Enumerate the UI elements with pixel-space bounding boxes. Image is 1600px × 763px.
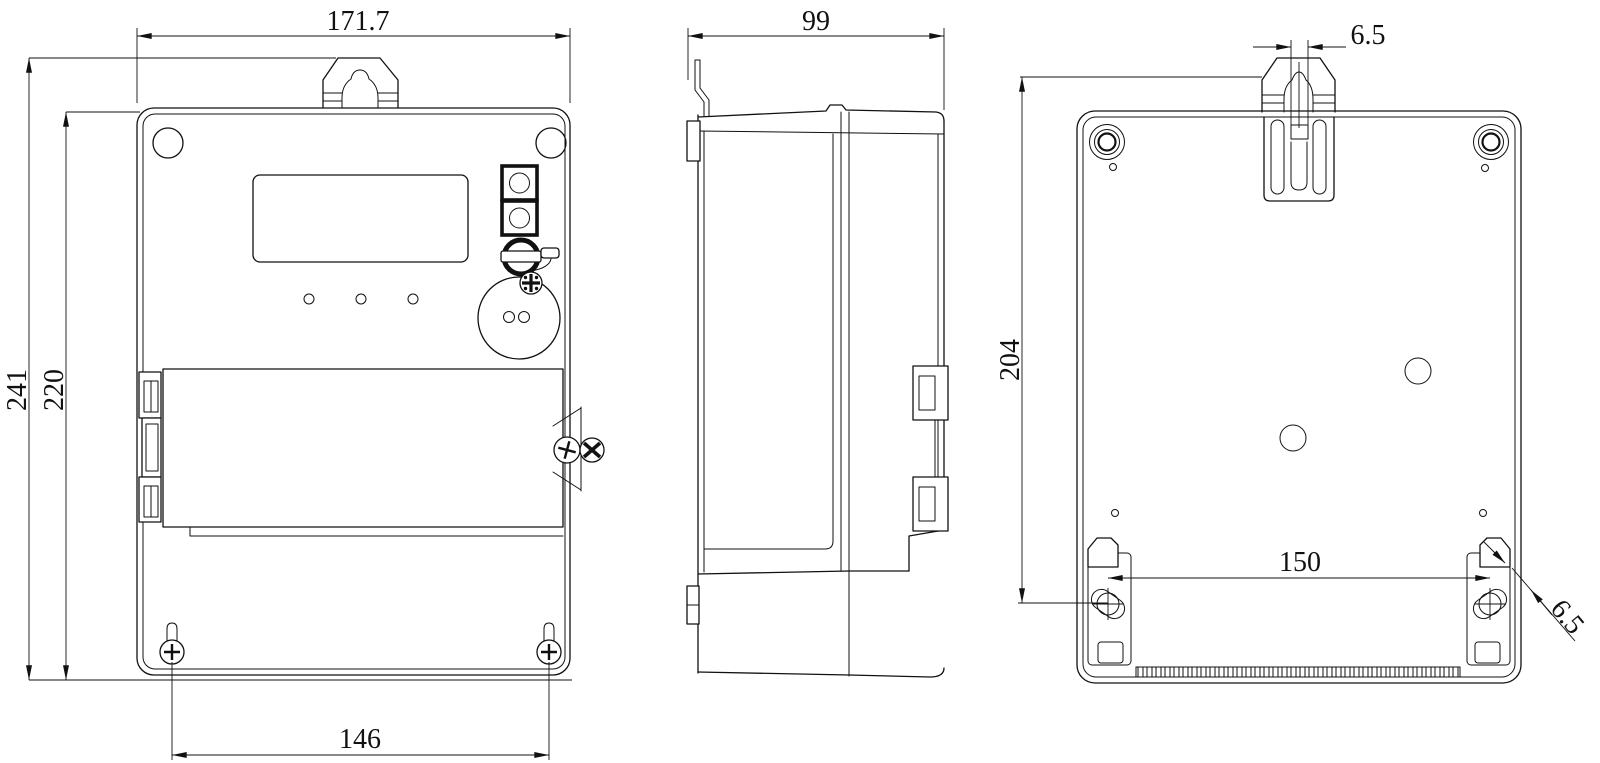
dim-label-body-height: 220	[39, 369, 70, 411]
cover-parting-line	[841, 112, 849, 571]
meter-three-view-drawing: 171.7 241 220 146	[0, 0, 1600, 763]
dim-label-hook-slot-width: 6.5	[1351, 20, 1386, 51]
dimension-bottom-screw-spacing: 146	[172, 662, 549, 760]
side-view	[687, 60, 948, 677]
terminal-cover	[163, 369, 563, 536]
dim-label-mounting-slot-width: 6.5	[1544, 594, 1590, 641]
technical-drawing-page: 171.7 241 220 146	[0, 0, 1600, 763]
terminal-cover-profile	[704, 134, 833, 549]
dimension-front-width: 171.7	[137, 6, 570, 103]
dimension-mounting-slot-width: 6.5	[1512, 568, 1590, 641]
dimension-hook-slot-width: 6.5	[1253, 20, 1386, 126]
terminal-vent-serration	[1136, 667, 1460, 677]
dimension-depth: 99	[688, 6, 944, 110]
button-upper	[502, 166, 537, 200]
dim-label-mounting-hole-spacing: 150	[1279, 547, 1321, 578]
dim-label-depth: 99	[802, 6, 830, 37]
button-lower	[502, 201, 537, 235]
rear-mounting-clips-side	[913, 366, 948, 531]
dim-label-front-width: 171.7	[327, 6, 390, 37]
dimension-body-height: 220	[39, 112, 140, 680]
back-body-outline	[1077, 111, 1521, 683]
back-view	[1077, 58, 1521, 683]
cover-hinge	[139, 372, 161, 522]
dim-label-bottom-screw-spacing: 146	[339, 724, 381, 755]
seal-stamp-small	[520, 272, 542, 294]
dim-label-back-mounting-height: 204	[995, 339, 1026, 381]
hanging-hook-front	[323, 58, 398, 108]
front-view	[137, 58, 604, 675]
push-buttons	[502, 166, 537, 235]
wall-hook-side	[695, 60, 709, 116]
front-hook-profile	[687, 121, 700, 161]
dim-label-overall-height: 241	[2, 369, 33, 411]
